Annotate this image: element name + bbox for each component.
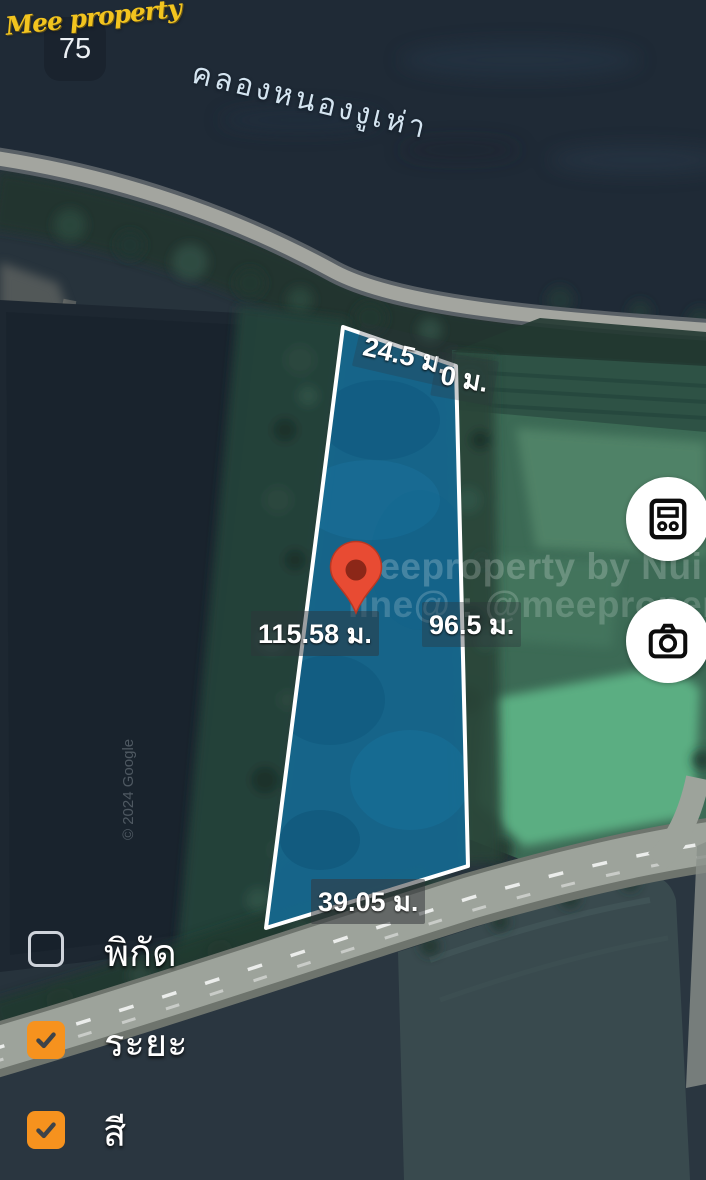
measure-right-label: 96.5 ม. <box>422 602 521 647</box>
map-attribution: © 2024 Google <box>120 739 137 840</box>
camera-icon <box>645 618 691 664</box>
checkbox-distance[interactable] <box>27 1021 65 1059</box>
checkbox-color-label[interactable]: สี <box>103 1102 126 1163</box>
checkbox-color[interactable] <box>27 1111 65 1149</box>
map-pin-icon <box>331 541 382 613</box>
check-icon <box>33 1027 59 1053</box>
map-screen[interactable]: คลองหนองงูเห่า 75 Mee property © 2024 Go… <box>0 0 706 1180</box>
checkbox-distance-label[interactable]: ระยะ <box>104 1012 188 1073</box>
checkbox-coordinates[interactable] <box>28 931 64 967</box>
checkbox-coordinates-label[interactable]: พิกัด <box>104 922 177 983</box>
calculator-tool-button[interactable] <box>626 477 706 561</box>
measure-bottom-label: 39.05 ม. <box>311 879 425 924</box>
check-icon <box>33 1117 59 1143</box>
camera-tool-button[interactable] <box>626 599 706 683</box>
measure-left-label: 115.58 ม. <box>251 611 379 656</box>
calculator-icon <box>645 496 691 542</box>
map-pin[interactable] <box>329 540 383 616</box>
